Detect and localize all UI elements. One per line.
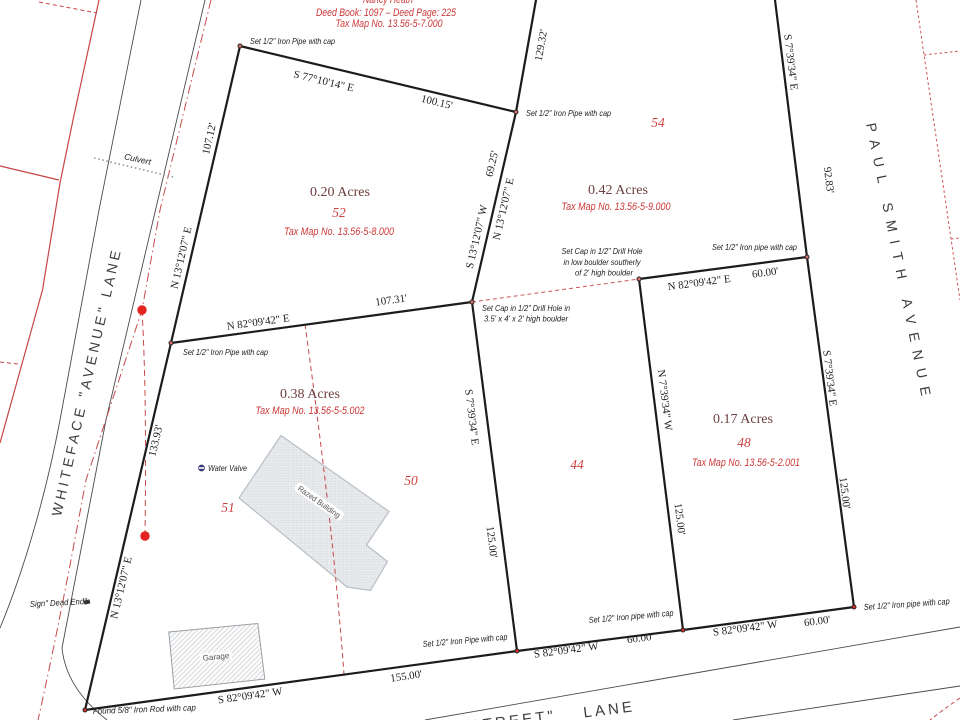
svg-text:Nancy Heath: Nancy Heath: [363, 0, 413, 6]
svg-text:3.5' x 4' x 2' high boulder: 3.5' x 4' x 2' high boulder: [484, 314, 569, 324]
svg-text:54: 54: [651, 115, 665, 130]
svg-text:Tax Map No. 13.56-5-5.002: Tax Map No. 13.56-5-5.002: [256, 405, 365, 417]
svg-text:Set 1/2" Iron Pipe with cap: Set 1/2" Iron Pipe with cap: [250, 36, 335, 46]
svg-text:0.17 Acres: 0.17 Acres: [713, 412, 773, 427]
svg-text:0.38 Acres: 0.38 Acres: [280, 387, 340, 402]
svg-text:0.42 Acres: 0.42 Acres: [588, 183, 648, 198]
svg-text:51: 51: [221, 500, 235, 515]
svg-text:48: 48: [737, 435, 751, 450]
svg-text:Water Valve: Water Valve: [208, 463, 247, 473]
svg-text:Tax Map No. 13.56-5-8.000: Tax Map No. 13.56-5-8.000: [284, 226, 394, 238]
svg-text:in low boulder southerly: in low boulder southerly: [564, 257, 642, 267]
svg-text:Tax Map No. 13.56-5-7.000: Tax Map No. 13.56-5-7.000: [336, 18, 443, 30]
svg-text:50: 50: [404, 473, 418, 488]
svg-text:Set Cap in 1/2" Drill Hole: Set Cap in 1/2" Drill Hole: [562, 246, 643, 256]
svg-text:44: 44: [570, 457, 584, 472]
svg-text:52: 52: [332, 205, 346, 220]
svg-text:of 2' high boulder: of 2' high boulder: [575, 268, 634, 278]
svg-text:0.20 Acres: 0.20 Acres: [310, 185, 370, 200]
svg-text:Set Cap in 1/2" Drill Hole in: Set Cap in 1/2" Drill Hole in: [482, 303, 570, 313]
svg-text:Set 1/2" Iron Pipe with cap: Set 1/2" Iron Pipe with cap: [526, 108, 611, 118]
svg-text:Tax Map No. 13.56-5-2.001: Tax Map No. 13.56-5-2.001: [692, 457, 800, 469]
svg-text:Set 1/2" Iron Pipe with cap: Set 1/2" Iron Pipe with cap: [183, 347, 268, 357]
svg-text:Tax Map No. 13.56-5-9.000: Tax Map No. 13.56-5-9.000: [562, 201, 671, 213]
svg-text:Set 1/2" Iron pipe with cap: Set 1/2" Iron pipe with cap: [712, 242, 797, 252]
